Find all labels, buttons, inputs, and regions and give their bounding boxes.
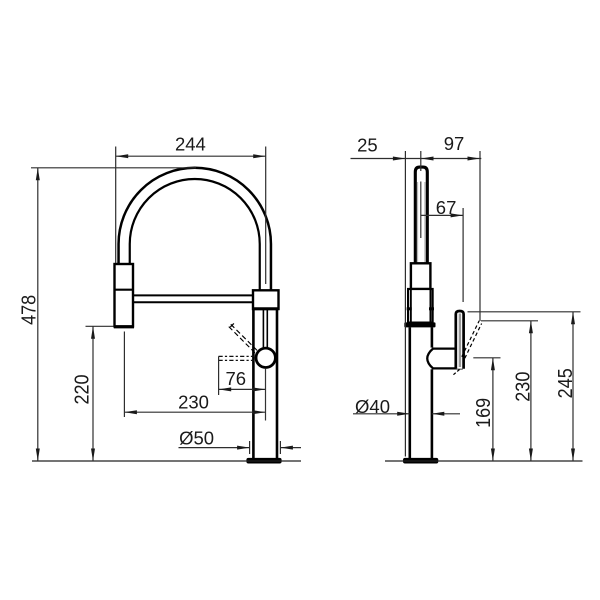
svg-text:220: 220 [71, 374, 93, 404]
svg-text:245: 245 [555, 368, 577, 398]
svg-text:230: 230 [513, 372, 535, 402]
svg-text:67: 67 [436, 197, 457, 218]
svg-text:97: 97 [444, 133, 465, 154]
svg-text:25: 25 [357, 134, 378, 155]
svg-text:Ø50: Ø50 [179, 427, 214, 448]
svg-text:Ø40: Ø40 [355, 396, 390, 417]
svg-text:478: 478 [19, 295, 41, 325]
svg-text:76: 76 [226, 368, 247, 389]
svg-text:169: 169 [473, 398, 495, 428]
svg-text:244: 244 [175, 134, 206, 155]
svg-text:230: 230 [178, 391, 209, 412]
